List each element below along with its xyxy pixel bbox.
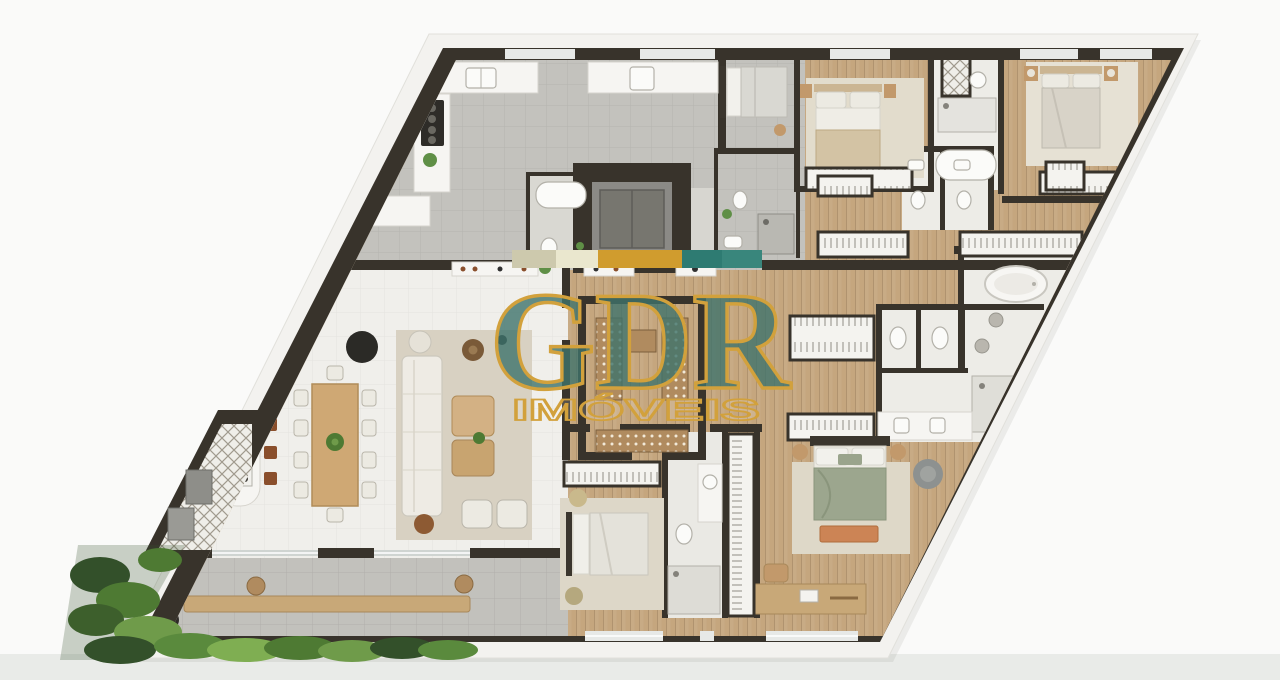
washbasin-icon xyxy=(970,72,986,88)
bar-stool xyxy=(264,446,277,459)
toilet-icon xyxy=(890,327,906,349)
kitchen-sink-icon xyxy=(466,68,496,88)
washbasin-icon xyxy=(930,418,945,433)
pouf xyxy=(414,514,434,534)
pouf xyxy=(565,587,583,605)
dining-chair xyxy=(327,508,343,522)
nightstand xyxy=(884,84,896,98)
double-bed xyxy=(566,512,648,576)
washbasin-icon xyxy=(894,418,909,433)
wine-rack xyxy=(596,430,688,452)
stool xyxy=(975,339,989,353)
dining-chair xyxy=(294,390,308,406)
floorplan-svg: GDR IMÓVEIS xyxy=(0,0,1280,680)
laptop-icon xyxy=(800,590,818,602)
wardrobe xyxy=(564,462,660,486)
master-vanity xyxy=(878,412,972,440)
nightstand xyxy=(890,444,906,460)
nightstand xyxy=(800,84,812,98)
plant-icon xyxy=(423,153,437,167)
washbasin-icon xyxy=(954,160,970,170)
terrace-stool xyxy=(247,577,265,595)
armchair xyxy=(462,500,492,528)
dining-chair xyxy=(362,390,376,406)
floorplan-image: GDR IMÓVEIS xyxy=(0,0,1280,680)
shower-icon xyxy=(758,214,794,254)
wardrobe xyxy=(790,316,874,360)
desk-chair xyxy=(764,564,788,582)
vanity xyxy=(698,464,722,522)
sofa xyxy=(402,356,442,516)
laundry-tank-icon xyxy=(630,67,654,90)
dining-chair xyxy=(294,420,308,436)
toilet-icon xyxy=(733,191,747,209)
nightstand xyxy=(1104,66,1118,81)
single-bed xyxy=(720,66,787,118)
bedroom-suite1 xyxy=(800,78,924,190)
watermark: GDR IMÓVEIS xyxy=(490,264,792,427)
nightstand xyxy=(792,444,808,460)
desk xyxy=(754,584,866,614)
washbasin-icon xyxy=(908,160,924,170)
washbasin-icon xyxy=(724,236,742,248)
dining-chair xyxy=(362,482,376,498)
ac-unit xyxy=(186,470,212,504)
stool xyxy=(989,313,1003,327)
dining-chair xyxy=(327,366,343,380)
terrace-bench xyxy=(184,596,470,612)
watermark-subtitle: IMÓVEIS xyxy=(512,393,760,427)
dining-chair xyxy=(362,420,376,436)
wardrobe xyxy=(1046,162,1084,190)
coffee-table xyxy=(452,396,494,436)
side-table xyxy=(409,331,431,353)
toilet-icon xyxy=(932,327,948,349)
nightstand xyxy=(1024,66,1038,81)
washbasin-icon xyxy=(703,475,717,489)
wardrobe xyxy=(818,176,872,196)
fireplace xyxy=(346,331,378,363)
plant-icon xyxy=(722,209,732,219)
master-bed xyxy=(810,436,890,520)
terrace-stool xyxy=(455,575,473,593)
pouf xyxy=(569,489,587,507)
dining-chair xyxy=(362,452,376,468)
dining-chair xyxy=(294,452,308,468)
coffee-table xyxy=(452,440,494,476)
wardrobe xyxy=(818,232,908,257)
walkin-closet xyxy=(728,434,754,616)
bedroom-bottom xyxy=(560,462,664,610)
shaft-hatched xyxy=(942,58,970,96)
ac-unit xyxy=(168,508,194,540)
plant-icon xyxy=(473,432,485,444)
plant-icon xyxy=(576,242,584,250)
toilet-icon xyxy=(957,191,971,209)
armchair xyxy=(497,500,527,528)
bed-bench xyxy=(820,526,878,542)
dining-chair xyxy=(294,482,308,498)
side-table xyxy=(774,124,786,136)
toilet-icon xyxy=(676,524,692,544)
bar-stool xyxy=(264,472,277,485)
wardrobe xyxy=(960,232,1082,256)
toilet-icon xyxy=(911,191,925,209)
bathtub-icon xyxy=(536,182,586,208)
